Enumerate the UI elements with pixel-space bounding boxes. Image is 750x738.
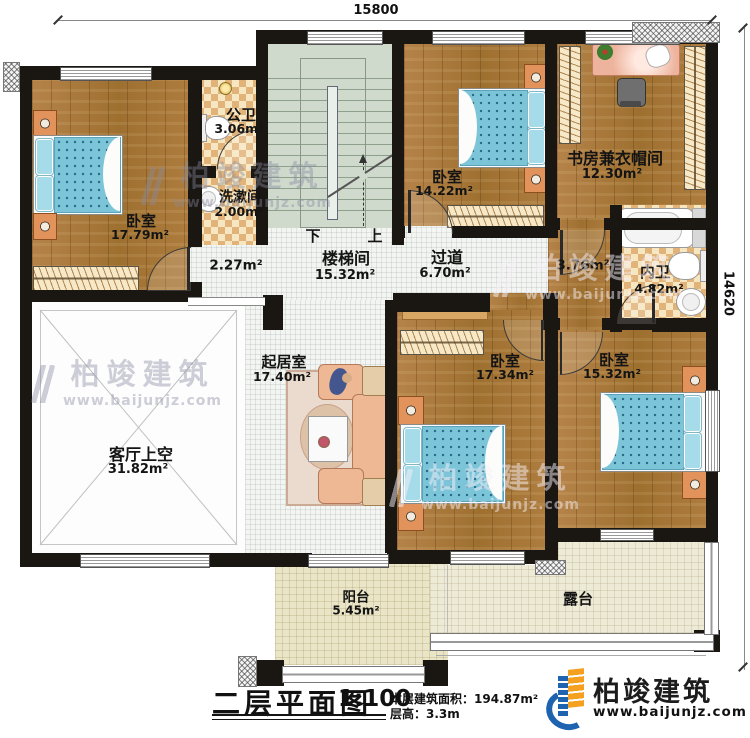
- threshold: [188, 297, 265, 306]
- building-area-label: 本层建筑面积：: [390, 692, 474, 706]
- stair-center-rail: [327, 86, 338, 220]
- bed-pillow: [528, 129, 545, 164]
- room-label-stair: 楼梯间: [322, 250, 370, 268]
- room-area-stair: 15.32m²: [315, 269, 375, 283]
- floor-height-label: 层高：: [390, 707, 426, 721]
- floor-height-note: 层高：3.3m: [390, 705, 460, 722]
- wall: [188, 66, 202, 247]
- room-area-bedroom-n: 14.22m²: [415, 184, 473, 198]
- stair-arrow-head: [359, 154, 367, 163]
- plant: [597, 44, 613, 60]
- wardrobe: [559, 46, 581, 144]
- window: [80, 554, 210, 568]
- room-area-bedroom-s: 17.34m²: [476, 368, 534, 382]
- terrace-floor-a: [558, 540, 712, 633]
- room-area-wash: 2.00m²: [214, 205, 263, 219]
- bed-pillow: [528, 92, 545, 128]
- room-area-corridor-e: 3.76m²: [556, 259, 609, 274]
- ceiling-lamp: [219, 82, 232, 95]
- bed-pillow: [684, 396, 701, 432]
- toilet-bowl: [668, 252, 700, 280]
- room-area-inner-bath: 4.82m²: [634, 282, 683, 296]
- wall: [196, 166, 216, 178]
- stair-up-label: 上: [367, 228, 382, 245]
- room-area-corridor: 6.70m²: [419, 267, 470, 281]
- logo-url-text: www.baijunjz.com: [593, 704, 747, 720]
- dimension-line-top: [58, 20, 712, 21]
- wall: [397, 226, 405, 238]
- door-leaf: [560, 332, 562, 374]
- desk-chair-back: [620, 101, 641, 107]
- wall: [452, 226, 558, 238]
- bed-pillow: [404, 465, 421, 501]
- window: [705, 390, 720, 472]
- nightstand: [682, 470, 708, 499]
- nightstand: [398, 502, 424, 531]
- nightstand: [33, 110, 57, 137]
- room-area-void: 31.82m²: [108, 463, 168, 477]
- dimension-right-value: 14620: [721, 264, 736, 324]
- window: [307, 31, 383, 45]
- building-area-value: 194.87m²: [474, 692, 538, 706]
- door-leaf: [541, 320, 543, 360]
- terrace-railing-right: [704, 542, 719, 635]
- room-area-bedroom-se: 15.32m²: [583, 367, 641, 381]
- room-label-inner-bath: 内卫: [640, 264, 670, 281]
- room-area-hall: 2.27m²: [209, 259, 262, 274]
- table-flowers: [318, 436, 330, 448]
- nightstand: [398, 396, 424, 425]
- window: [60, 67, 152, 81]
- nightstand: [33, 213, 57, 240]
- room-area-bedroom-nw: 17.79m²: [111, 228, 169, 242]
- floor-plan-canvas: 卧室 17.79m² 公卫 3.06m² 洗漱间 2.00m² 下 上 楼梯间 …: [0, 0, 750, 738]
- void-diagonal-lines: [32, 302, 245, 553]
- terrace-step-line: [447, 565, 448, 633]
- dimension-line-right: [744, 25, 745, 670]
- room-label-corridor: 过道: [431, 249, 463, 267]
- terrace-floor-b: [430, 565, 558, 633]
- bed-pillow: [36, 176, 53, 211]
- floor-height-value: 3.3m: [426, 707, 460, 721]
- armchair: [318, 468, 364, 504]
- wall: [20, 290, 202, 302]
- door-leaf: [408, 190, 411, 233]
- stair-down-label: 下: [305, 228, 320, 245]
- sink-basin: [682, 293, 700, 311]
- bed-pillow: [684, 433, 701, 469]
- person-head: [342, 373, 352, 383]
- void-floor: [32, 302, 245, 553]
- bed-pillow: [404, 428, 421, 464]
- wall: [20, 66, 32, 567]
- wall: [393, 293, 490, 312]
- wall: [557, 218, 560, 230]
- dimension-tick: [738, 23, 748, 33]
- room-label-terrace: 露台: [563, 591, 593, 608]
- terrace-outer-line: [436, 655, 706, 656]
- terrace-railing: [430, 633, 714, 651]
- hatch-decor: [3, 62, 20, 92]
- door-leaf: [187, 247, 190, 290]
- balcony-railing: [282, 666, 425, 683]
- room-label-study: 书房兼衣帽间: [567, 150, 663, 168]
- room-area-study: 12.30m²: [582, 168, 642, 182]
- wall: [385, 300, 397, 553]
- room-label-living: 起居室: [261, 354, 306, 371]
- wall-pillar: [263, 295, 283, 330]
- wall: [545, 318, 558, 555]
- room-area-balcony: 5.45m²: [332, 604, 379, 617]
- bed-pillow: [36, 139, 53, 175]
- sliding-door-terrace: [600, 529, 654, 541]
- sliding-door-balcony: [308, 554, 389, 568]
- wardrobe: [447, 205, 544, 228]
- window: [450, 551, 525, 565]
- wardrobe: [684, 46, 706, 190]
- wall: [545, 30, 557, 238]
- room-area-living: 17.40m²: [253, 370, 311, 384]
- dimension-top-value: 15800: [348, 3, 404, 18]
- logo-blue-bar: [558, 676, 568, 718]
- wardrobe: [400, 330, 484, 355]
- company-logo: 柏竣建筑 www.baijunjz.com: [545, 664, 745, 730]
- room-area-public-bath: 3.06m²: [214, 122, 263, 136]
- logo-orange-block: [568, 668, 584, 708]
- pillar: [423, 660, 448, 686]
- wall: [392, 30, 404, 245]
- wall: [558, 318, 560, 330]
- title-underline: [212, 714, 386, 720]
- wardrobe: [33, 266, 139, 291]
- hatch-decor: [535, 560, 566, 575]
- window: [432, 31, 525, 45]
- hatch-decor: [632, 22, 720, 43]
